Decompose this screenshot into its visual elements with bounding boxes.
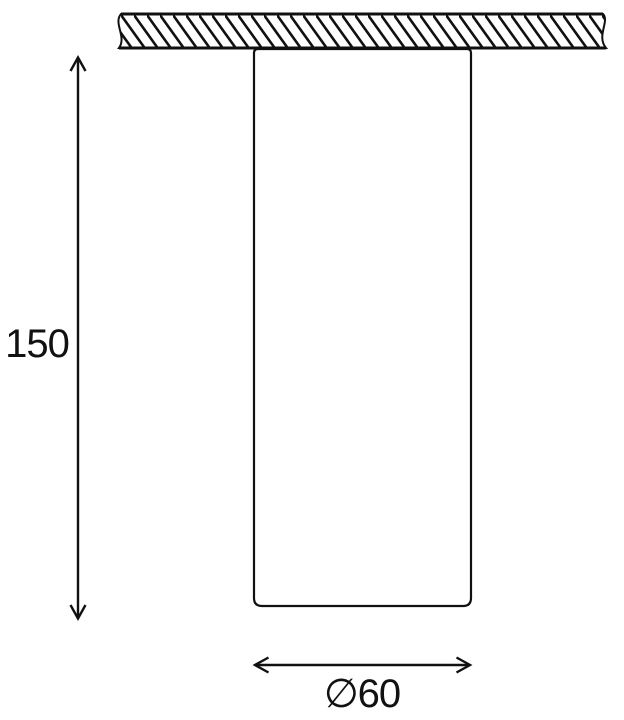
dimension-drawing: 150 ∅60	[0, 0, 624, 720]
fixture-body	[254, 49, 471, 606]
fixture-dimension-diagram: 150 ∅60	[0, 0, 624, 720]
height-dimension-label: 150	[5, 322, 69, 366]
diameter-dimension-label: ∅60	[324, 672, 400, 716]
ceiling-bar	[118, 14, 606, 48]
